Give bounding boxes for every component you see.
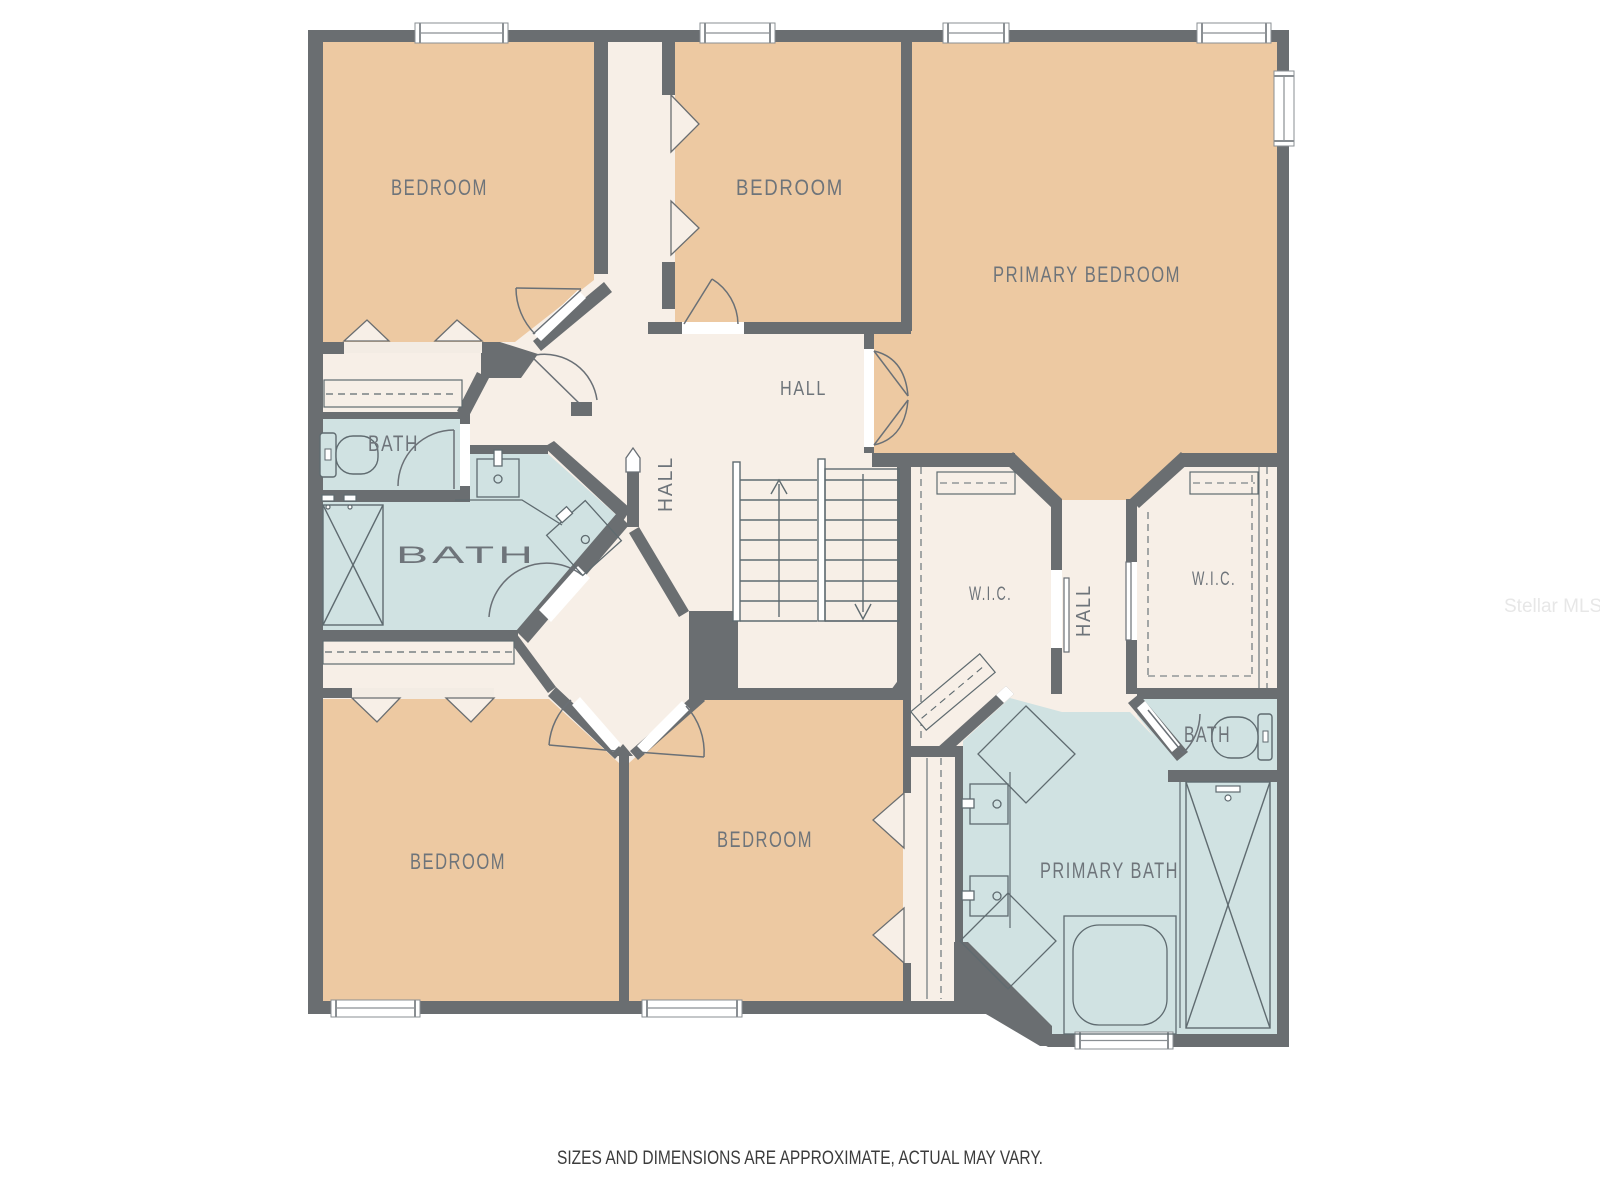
svg-text:PRIMARY BEDROOM: PRIMARY BEDROOM [993, 262, 1181, 287]
svg-text:BATH: BATH [396, 542, 537, 569]
svg-text:PRIMARY BATH: PRIMARY BATH [1040, 858, 1179, 883]
svg-text:BEDROOM: BEDROOM [736, 175, 844, 200]
svg-text:Stellar MLS: Stellar MLS [1504, 596, 1600, 617]
svg-text:W.I.C.: W.I.C. [969, 584, 1012, 605]
svg-text:HALL: HALL [1073, 584, 1095, 637]
svg-text:BEDROOM: BEDROOM [410, 849, 506, 874]
svg-text:BATH: BATH [1184, 722, 1231, 747]
svg-text:BEDROOM: BEDROOM [717, 827, 813, 852]
svg-text:HALL: HALL [780, 378, 827, 400]
svg-text:SIZES AND DIMENSIONS ARE APPRO: SIZES AND DIMENSIONS ARE APPROXIMATE, AC… [557, 1148, 1043, 1169]
svg-text:BEDROOM: BEDROOM [391, 175, 488, 200]
svg-text:HALL: HALL [655, 456, 677, 512]
svg-text:BATH: BATH [368, 431, 419, 456]
svg-text:W.I.C.: W.I.C. [1192, 569, 1236, 590]
